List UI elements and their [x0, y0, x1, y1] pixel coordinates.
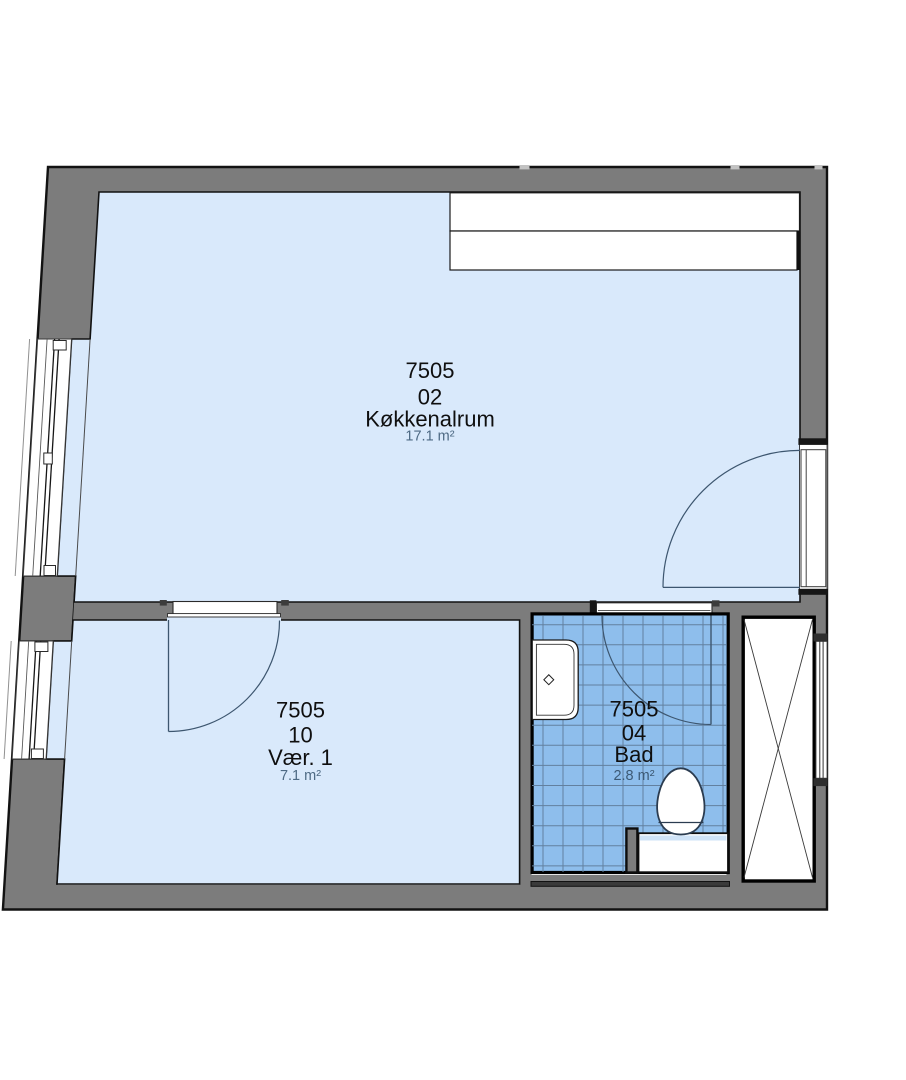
svg-text:7505: 7505 — [406, 358, 455, 383]
svg-text:7.1 m²: 7.1 m² — [280, 768, 321, 784]
svg-text:17.1 m²: 17.1 m² — [405, 429, 454, 445]
svg-text:Vær. 1: Vær. 1 — [268, 745, 333, 770]
svg-text:10: 10 — [288, 722, 312, 747]
svg-text:2.8 m²: 2.8 m² — [613, 768, 654, 784]
svg-text:Bad: Bad — [614, 742, 653, 767]
svg-text:7505: 7505 — [276, 698, 325, 723]
svg-text:7505: 7505 — [610, 696, 659, 721]
